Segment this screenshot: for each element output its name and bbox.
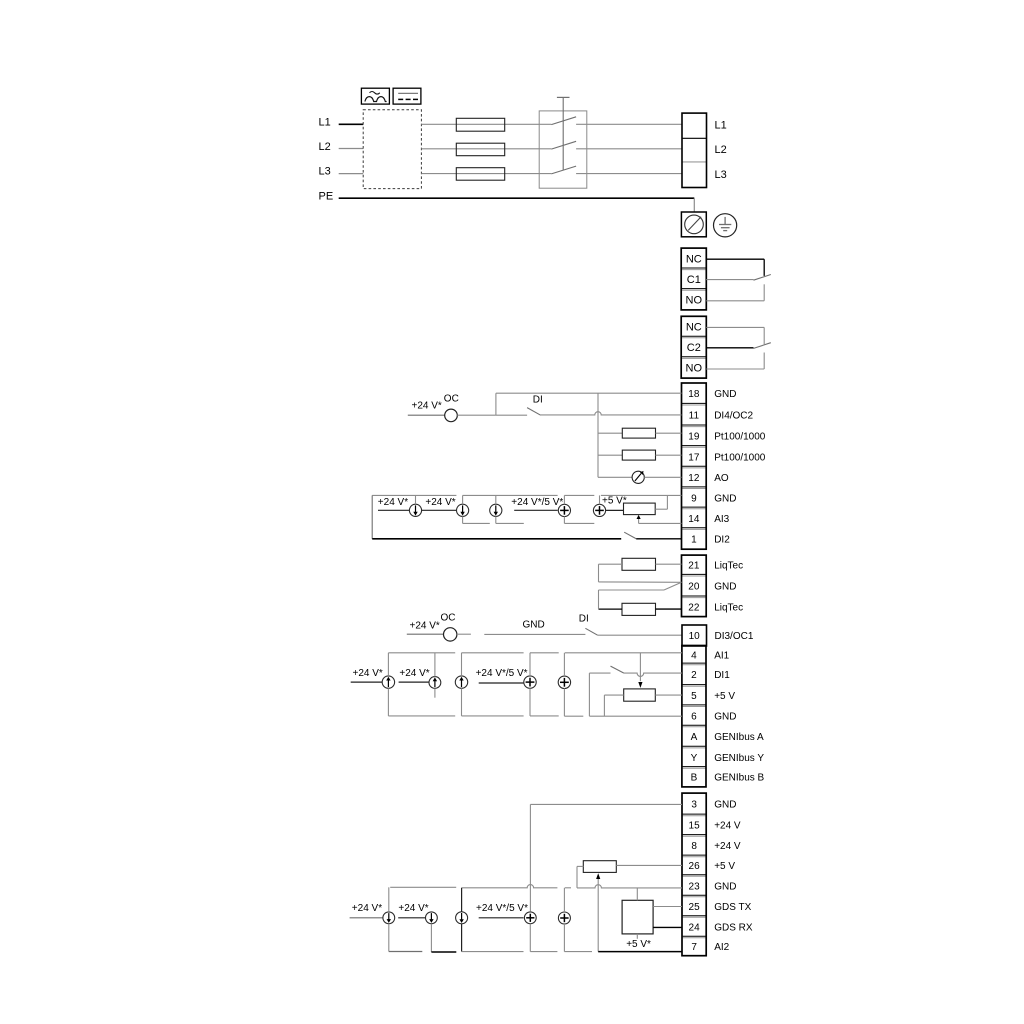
svg-text:L3: L3: [715, 169, 727, 181]
svg-text:6: 6: [691, 711, 697, 722]
svg-text:1: 1: [691, 534, 697, 545]
svg-text:L2: L2: [319, 141, 331, 153]
svg-text:A: A: [691, 732, 698, 743]
svg-text:+24 V*: +24 V*: [378, 497, 408, 508]
svg-text:+24 V*: +24 V*: [352, 903, 382, 914]
svg-text:OC: OC: [444, 393, 459, 404]
svg-text:GND: GND: [714, 389, 736, 400]
svg-text:19: 19: [688, 432, 700, 443]
svg-text:GDS RX: GDS RX: [714, 922, 753, 933]
svg-text:22: 22: [688, 602, 700, 613]
svg-text:+5 V: +5 V: [714, 691, 735, 702]
svg-text:DI: DI: [533, 395, 543, 406]
svg-text:17: 17: [688, 452, 700, 463]
svg-text:10: 10: [689, 631, 701, 642]
svg-text:DI3/OC1: DI3/OC1: [715, 631, 754, 642]
svg-text:AI3: AI3: [714, 514, 729, 525]
svg-text:7: 7: [691, 942, 697, 953]
svg-text:LiqTec: LiqTec: [714, 602, 743, 613]
svg-text:8: 8: [691, 841, 697, 852]
svg-text:PE: PE: [319, 191, 334, 203]
svg-text:20: 20: [688, 582, 700, 593]
svg-text:GND: GND: [523, 620, 545, 631]
svg-text:+24 V*/5 V*: +24 V*/5 V*: [511, 497, 563, 508]
svg-text:Pt100/1000: Pt100/1000: [714, 452, 766, 463]
svg-text:L1: L1: [319, 116, 331, 128]
svg-text:DI1: DI1: [714, 670, 730, 681]
svg-text:2: 2: [691, 670, 697, 681]
svg-text:DI4/OC2: DI4/OC2: [714, 411, 753, 422]
svg-text:GND: GND: [714, 800, 736, 811]
svg-text:GDS TX: GDS TX: [714, 902, 751, 913]
svg-text:4: 4: [691, 650, 697, 661]
svg-text:GENIbus B: GENIbus B: [714, 773, 764, 784]
svg-text:18: 18: [688, 389, 700, 400]
svg-text:11: 11: [689, 411, 700, 422]
svg-text:+24 V*: +24 V*: [353, 668, 383, 679]
svg-text:25: 25: [689, 902, 701, 913]
svg-text:5: 5: [691, 691, 697, 702]
svg-text:GENIbus Y: GENIbus Y: [714, 753, 764, 764]
svg-text:12: 12: [688, 473, 700, 484]
svg-text:+24 V: +24 V: [714, 841, 741, 852]
svg-text:26: 26: [689, 861, 701, 872]
svg-text:NO: NO: [686, 363, 703, 375]
svg-text:AI2: AI2: [714, 942, 729, 953]
svg-text:C2: C2: [687, 342, 701, 354]
svg-text:9: 9: [691, 493, 697, 504]
svg-text:LiqTec: LiqTec: [714, 561, 743, 572]
svg-text:+24 V*/5 V*: +24 V*/5 V*: [476, 668, 528, 679]
svg-text:23: 23: [689, 881, 701, 892]
svg-text:GND: GND: [714, 711, 736, 722]
svg-text:GENIbus A: GENIbus A: [714, 732, 764, 743]
svg-text:C1: C1: [687, 274, 701, 286]
svg-text:+5 V*: +5 V*: [626, 939, 651, 950]
svg-text:DI: DI: [579, 613, 589, 624]
svg-text:GND: GND: [714, 493, 736, 504]
svg-text:+24 V: +24 V: [714, 821, 741, 832]
svg-text:+24 V*: +24 V*: [410, 621, 440, 632]
svg-text:AO: AO: [714, 473, 729, 484]
svg-text:Pt100/1000: Pt100/1000: [714, 432, 766, 443]
svg-text:21: 21: [688, 561, 700, 572]
svg-text:+24 V*: +24 V*: [399, 668, 429, 679]
svg-text:NO: NO: [686, 295, 703, 307]
svg-text:+24 V*: +24 V*: [425, 497, 455, 508]
svg-text:GND: GND: [714, 582, 736, 593]
svg-text:NC: NC: [686, 322, 702, 334]
svg-text:AI1: AI1: [714, 650, 729, 661]
svg-text:14: 14: [688, 514, 700, 525]
svg-text:L1: L1: [715, 119, 727, 131]
svg-text:Y: Y: [691, 753, 698, 764]
svg-text:3: 3: [691, 800, 697, 811]
svg-text:L2: L2: [715, 144, 727, 156]
svg-text:+24 V*: +24 V*: [398, 903, 428, 914]
svg-text:B: B: [691, 773, 698, 784]
svg-text:OC: OC: [441, 613, 456, 624]
svg-text:L3: L3: [319, 166, 331, 178]
svg-text:+5 V: +5 V: [714, 861, 735, 872]
svg-text:DI2: DI2: [714, 534, 730, 545]
svg-text:24: 24: [689, 922, 701, 933]
svg-text:GND: GND: [714, 881, 736, 892]
svg-text:15: 15: [689, 821, 701, 832]
svg-text:+24 V*: +24 V*: [412, 401, 442, 412]
svg-text:NC: NC: [686, 253, 702, 265]
svg-text:+24 V*/5 V*: +24 V*/5 V*: [476, 903, 528, 914]
